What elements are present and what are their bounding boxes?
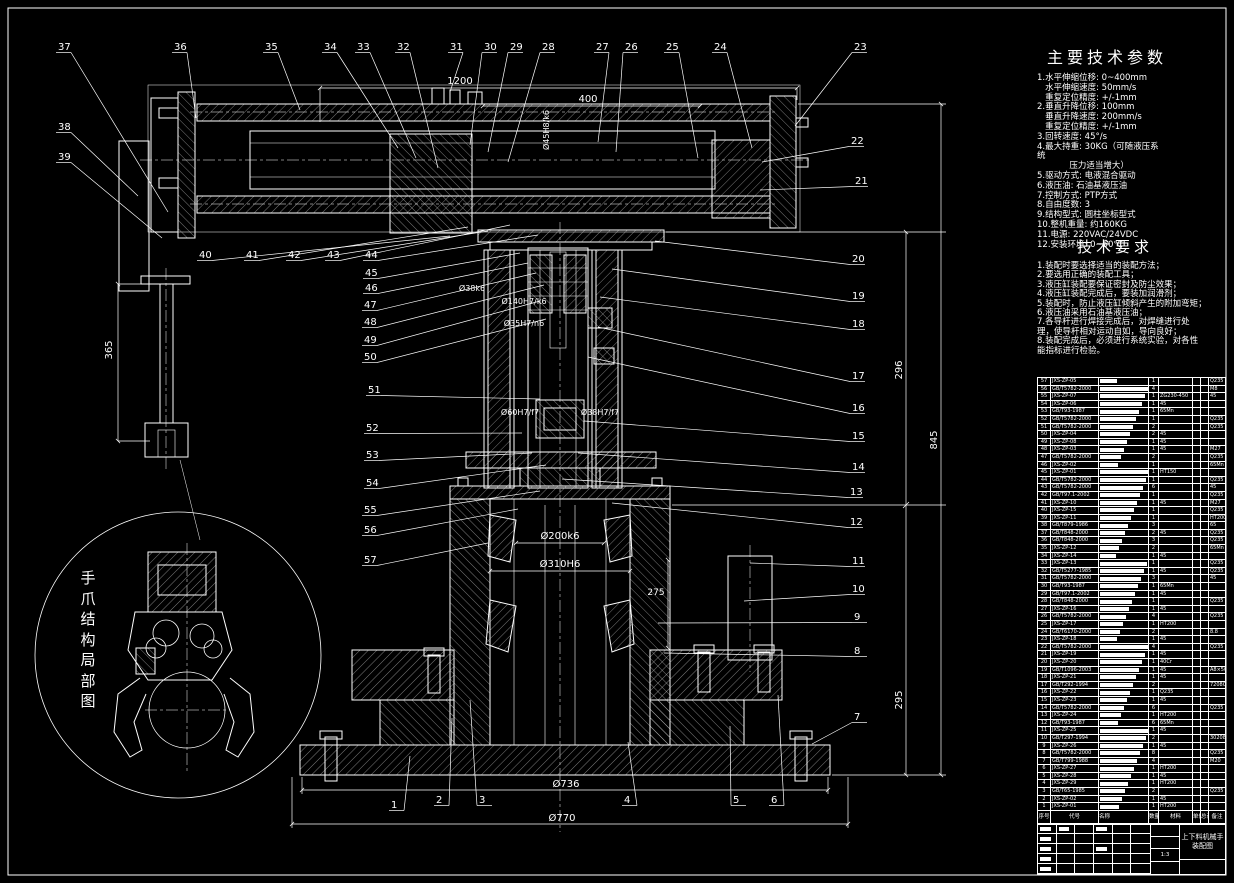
table-cell: 65Mn <box>1209 545 1225 552</box>
callout-label: 36 <box>174 42 187 53</box>
table-row: 32GB/T5277-1985145Q235 <box>1038 568 1225 576</box>
callout-label: 39 <box>58 152 71 163</box>
gripper-detail-label: 手 爪 结 构 局 部 图 <box>79 568 97 712</box>
table-row: 57JXS-ZP-051Q235 <box>1038 378 1225 386</box>
callout-label: 21 <box>855 176 868 187</box>
table-cell <box>1193 386 1201 393</box>
title-block-cell <box>1038 834 1057 844</box>
table-cell <box>1099 408 1149 415</box>
table-row: 37GB/T848-2000245Q235 <box>1038 530 1225 538</box>
table-cell: 总计 <box>1201 811 1209 824</box>
table-row: 44GB/T5782-20001Q235 <box>1038 477 1225 485</box>
table-row: 8GB/T5782-20008Q235 <box>1038 750 1225 758</box>
table-cell: 1 <box>1149 667 1159 674</box>
table-cell: 序号 <box>1038 811 1051 824</box>
part-name-blob <box>1100 577 1141 581</box>
table-cell <box>1201 682 1209 689</box>
table-cell: Q235 <box>1209 560 1225 567</box>
table-cell: 4 <box>1149 386 1159 393</box>
part-name-blob <box>1100 531 1125 535</box>
title-block-cell <box>1075 854 1094 864</box>
table-cell <box>1099 401 1149 408</box>
title-block-cell <box>1094 844 1113 854</box>
table-cell: 45 <box>1159 606 1193 613</box>
table-cell: 45 <box>1159 743 1193 750</box>
table-row: 26GB/T5782-20004Q235 <box>1038 613 1225 621</box>
callout-label: 15 <box>852 431 865 442</box>
table-cell: 45 <box>1209 484 1225 491</box>
title-block-cell <box>1151 862 1179 874</box>
table-cell <box>1193 667 1201 674</box>
table-cell: JXS-ZP-10 <box>1051 500 1099 507</box>
table-cell <box>1193 568 1201 575</box>
table-row: 40JXS-ZP-151Q235 <box>1038 507 1225 515</box>
table-cell <box>1193 530 1201 537</box>
title-block-revision-grid <box>1038 824 1151 874</box>
table-row: 6JXS-ZP-271HT200 <box>1038 765 1225 773</box>
table-cell: JXS-ZP-26 <box>1051 743 1099 750</box>
table-cell: HT200 <box>1159 803 1193 810</box>
part-name-blob <box>1100 782 1128 786</box>
table-row: 50JXS-ZP-04245 <box>1038 431 1225 439</box>
title-block-cell <box>1113 834 1132 844</box>
part-name-blob <box>1100 805 1119 809</box>
table-cell: 1 <box>1149 606 1159 613</box>
table-cell <box>1099 705 1149 712</box>
table-cell <box>1099 484 1149 491</box>
table-cell: HT200 <box>1159 780 1193 787</box>
table-cell <box>1201 469 1209 476</box>
table-cell: HT200 <box>1159 712 1193 719</box>
table-cell <box>1209 674 1225 681</box>
table-cell <box>1201 568 1209 575</box>
table-cell: 1 <box>1149 439 1159 446</box>
title-block-bottom-cell <box>1180 860 1225 874</box>
dimension-label: Ø140H7/k6 <box>501 296 546 306</box>
table-cell <box>1201 803 1209 810</box>
table-cell <box>1193 629 1201 636</box>
table-cell: 45 <box>1159 727 1193 734</box>
table-cell: 65Mn <box>1159 720 1193 727</box>
callout-label: 43 <box>327 250 340 261</box>
table-cell <box>1209 591 1225 598</box>
table-cell <box>1201 416 1209 423</box>
table-cell <box>1099 758 1149 765</box>
table-row: 29GB/T97.1-2002145 <box>1038 591 1225 599</box>
table-cell: 45 <box>1159 439 1193 446</box>
table-cell: 56 <box>1038 386 1051 393</box>
table-cell: 1 <box>1038 803 1051 810</box>
table-cell <box>1193 545 1201 552</box>
table-cell: 1 <box>1149 408 1159 415</box>
table-cell: 1 <box>1149 583 1159 590</box>
table-cell: 27 <box>1038 606 1051 613</box>
table-row: 27JXS-ZP-16145 <box>1038 606 1225 614</box>
table-cell <box>1099 583 1149 590</box>
table-cell: 28 <box>1038 598 1051 605</box>
table-cell: 1 <box>1149 780 1159 787</box>
table-cell: 2 <box>1149 629 1159 636</box>
table-row: 28GB/T848-20001Q235 <box>1038 598 1225 606</box>
table-cell <box>1159 462 1193 469</box>
table-cell <box>1201 727 1209 734</box>
table-cell <box>1099 462 1149 469</box>
table-cell <box>1099 727 1149 734</box>
table-cell <box>1193 401 1201 408</box>
table-row: 53GB/T93-1987165Mn <box>1038 408 1225 416</box>
part-name-blob <box>1100 417 1136 421</box>
table-cell: 46 <box>1038 462 1051 469</box>
table-cell <box>1099 598 1149 605</box>
callout-label: 44 <box>365 250 378 261</box>
title-block-cell <box>1113 854 1132 864</box>
dimension-label: Ø45H8/k6 <box>541 110 551 150</box>
title-block-cell <box>1131 844 1150 854</box>
signature-blob <box>1096 847 1107 851</box>
table-cell: 45 <box>1159 636 1193 643</box>
callout-label: 33 <box>357 42 370 53</box>
title-block-cell <box>1075 834 1094 844</box>
table-cell <box>1099 606 1149 613</box>
table-cell: GB/T5782-2000 <box>1051 705 1099 712</box>
part-name-blob <box>1100 789 1125 793</box>
table-cell: 8 <box>1149 750 1159 757</box>
callout-label: 24 <box>714 42 727 53</box>
table-cell <box>1099 545 1149 552</box>
callout-label: 7 <box>854 712 860 723</box>
table-cell: 37 <box>1038 530 1051 537</box>
table-cell <box>1209 621 1225 628</box>
table-cell: JXS-ZP-07 <box>1051 393 1099 400</box>
table-cell: 26 <box>1038 613 1051 620</box>
table-cell: GB/T1096-2003 <box>1051 667 1099 674</box>
table-cell: 1 <box>1149 773 1159 780</box>
table-cell: JXS-ZP-11 <box>1051 515 1099 522</box>
table-cell <box>1193 439 1201 446</box>
table-cell: 19 <box>1038 667 1051 674</box>
table-cell: GB/T879-1986 <box>1051 522 1099 529</box>
table-row: 25JXS-ZP-171HT200 <box>1038 621 1225 629</box>
callout-label: 52 <box>366 423 379 434</box>
title-block-cell <box>1057 854 1076 864</box>
table-cell <box>1201 393 1209 400</box>
table-cell <box>1201 386 1209 393</box>
table-cell: 6 <box>1149 720 1159 727</box>
table-cell <box>1099 720 1149 727</box>
table-cell <box>1201 537 1209 544</box>
table-cell: 2 <box>1149 735 1159 742</box>
table-cell: 45 <box>1159 401 1193 408</box>
product-name: 上下料机械手 <box>1182 833 1224 842</box>
part-name-blob <box>1100 584 1138 588</box>
callout-label: 27 <box>596 42 609 53</box>
table-row: 14GB/T5782-20006Q235 <box>1038 705 1225 713</box>
part-name-blob <box>1100 387 1148 391</box>
table-cell: 1 <box>1149 560 1159 567</box>
title-block-cell <box>1094 864 1113 874</box>
callout-label: 25 <box>666 42 679 53</box>
table-cell <box>1193 462 1201 469</box>
title-block-cell <box>1151 824 1179 837</box>
table-cell: JXS-ZP-02 <box>1051 462 1099 469</box>
table-cell: A8×50 <box>1209 667 1225 674</box>
part-name-blob <box>1100 713 1121 717</box>
dimension-label: Ø60H7/f7 <box>501 407 539 417</box>
part-name-blob <box>1100 501 1137 505</box>
table-cell <box>1193 606 1201 613</box>
table-cell: GB/T5782-2000 <box>1051 613 1099 620</box>
table-row: 7GB/T799-19884M20 <box>1038 758 1225 766</box>
part-name-blob <box>1100 675 1136 679</box>
part-name-blob <box>1100 592 1135 596</box>
table-cell <box>1159 537 1193 544</box>
table-cell: 52 <box>1038 416 1051 423</box>
part-name-blob <box>1100 562 1147 566</box>
table-row: 49JXS-ZP-08145 <box>1038 439 1225 447</box>
table-cell: JXS-ZP-13 <box>1051 560 1099 567</box>
table-cell <box>1099 386 1149 393</box>
table-cell: 1 <box>1149 462 1159 469</box>
table-cell: Q235 <box>1209 705 1225 712</box>
table-row: 16JXS-ZP-221Q235 <box>1038 689 1225 697</box>
table-cell: 6 <box>1149 705 1159 712</box>
table-cell <box>1201 492 1209 499</box>
part-name-blob <box>1100 486 1143 490</box>
dimension-label: Ø310H6 <box>540 558 581 570</box>
table-cell <box>1201 431 1209 438</box>
table-cell: Q235 <box>1209 416 1225 423</box>
gripper-detail-view <box>35 460 321 798</box>
dimension-label: Ø38H7/f7 <box>581 407 619 417</box>
table-cell <box>1193 788 1201 795</box>
table-cell: JXS-ZP-27 <box>1051 765 1099 772</box>
signature-blob <box>1040 837 1051 841</box>
table-cell: GB/T848-2000 <box>1051 598 1099 605</box>
table-cell: JXS-ZP-04 <box>1051 431 1099 438</box>
table-cell: JXS-ZP-18 <box>1051 636 1099 643</box>
table-cell: JXS-ZP-16 <box>1051 606 1099 613</box>
table-row: 20JXS-ZP-20140Cr <box>1038 659 1225 667</box>
table-cell <box>1193 408 1201 415</box>
table-cell: 9 <box>1038 743 1051 750</box>
table-cell <box>1099 431 1149 438</box>
table-cell: 30 <box>1038 583 1051 590</box>
title-block-cell <box>1113 844 1132 854</box>
table-row: 47GB/T5782-20002Q235 <box>1038 454 1225 462</box>
table-cell <box>1193 378 1201 385</box>
table-cell: JXS-ZP-25 <box>1051 727 1099 734</box>
table-cell <box>1201 454 1209 461</box>
table-cell <box>1193 500 1201 507</box>
table-cell <box>1099 803 1149 810</box>
table-cell: JXS-ZP-14 <box>1051 553 1099 560</box>
table-cell: 1 <box>1149 500 1159 507</box>
callout-label: 31 <box>450 42 463 53</box>
dimension-label: Ø200k6 <box>540 530 579 542</box>
callout-label: 1 <box>391 800 397 811</box>
table-cell <box>1099 568 1149 575</box>
table-row: 52GB/T5782-20001Q235 <box>1038 416 1225 424</box>
table-cell <box>1099 682 1149 689</box>
table-cell <box>1193 727 1201 734</box>
table-cell: 1 <box>1149 568 1159 575</box>
table-cell: 2 <box>1149 788 1159 795</box>
table-cell: GB/T93-1987 <box>1051 720 1099 727</box>
table-cell <box>1099 469 1149 476</box>
table-cell <box>1099 424 1149 431</box>
table-cell: 2 <box>1149 424 1159 431</box>
table-cell: GB/T5782-2000 <box>1051 424 1099 431</box>
table-cell: HT200 <box>1159 621 1193 628</box>
table-cell: 13 <box>1038 712 1051 719</box>
table-cell <box>1193 743 1201 750</box>
table-cell <box>1193 780 1201 787</box>
part-name-blob <box>1100 425 1133 429</box>
table-cell: 2 <box>1149 545 1159 552</box>
table-cell <box>1201 758 1209 765</box>
table-cell: ZG230-450 <box>1159 393 1193 400</box>
part-name-blob <box>1100 516 1131 520</box>
callout-label: 46 <box>365 283 378 294</box>
table-cell: 1 <box>1149 507 1159 514</box>
table-cell: 1 <box>1149 796 1159 803</box>
table-row: 38GB/T879-1986365 <box>1038 522 1225 530</box>
table-cell <box>1193 659 1201 666</box>
table-cell: 45 <box>1209 393 1225 400</box>
callout-label: 37 <box>58 42 71 53</box>
table-cell <box>1209 765 1225 772</box>
table-cell: Q235 <box>1209 477 1225 484</box>
table-cell <box>1193 735 1201 742</box>
part-name-blob <box>1100 622 1123 626</box>
table-cell: 5 <box>1038 773 1051 780</box>
table-cell: 1 <box>1149 393 1159 400</box>
tech-requirements-lines: 1.装配时要选择适当的装配方法；2.要选用正确的装配工具；3.液压缸装配要保证密… <box>1037 262 1227 356</box>
callout-label: 4 <box>624 795 630 806</box>
table-cell <box>1099 500 1149 507</box>
table-cell <box>1209 583 1225 590</box>
table-cell <box>1193 803 1201 810</box>
dimension-label: 400 <box>578 94 597 105</box>
table-cell <box>1193 758 1201 765</box>
table-cell: 45 <box>1159 651 1193 658</box>
table-cell: 16 <box>1038 689 1051 696</box>
part-name-blob <box>1100 440 1127 444</box>
table-cell <box>1201 743 1209 750</box>
title-block-cell <box>1131 864 1150 874</box>
table-cell <box>1201 484 1209 491</box>
table-cell: JXS-ZP-29 <box>1051 780 1099 787</box>
table-cell <box>1193 431 1201 438</box>
table-cell <box>1099 743 1149 750</box>
table-cell <box>1159 424 1193 431</box>
table-cell <box>1201 545 1209 552</box>
table-cell <box>1193 765 1201 772</box>
table-cell: 8 <box>1038 750 1051 757</box>
table-cell <box>1159 386 1193 393</box>
callout-label: 10 <box>852 584 865 595</box>
table-cell: 45 <box>1159 431 1193 438</box>
table-cell <box>1209 431 1225 438</box>
table-cell: 1 <box>1149 712 1159 719</box>
table-cell: 49 <box>1038 439 1051 446</box>
table-cell: 38 <box>1038 522 1051 529</box>
table-row: 5JXS-ZP-28145 <box>1038 773 1225 781</box>
table-cell: M27 <box>1209 446 1225 453</box>
table-cell: 1 <box>1149 378 1159 385</box>
table-cell: 30208 <box>1209 735 1225 742</box>
table-cell: 31 <box>1038 575 1051 582</box>
part-name-blob <box>1100 759 1137 763</box>
table-cell: 45 <box>1159 530 1193 537</box>
table-cell <box>1099 613 1149 620</box>
table-row: 13JXS-ZP-241HT200 <box>1038 712 1225 720</box>
table-cell <box>1099 750 1149 757</box>
part-name-blob <box>1100 508 1134 512</box>
table-cell <box>1159 492 1193 499</box>
table-cell: 45 <box>1159 568 1193 575</box>
title-block-cell <box>1131 854 1150 864</box>
table-cell <box>1193 598 1201 605</box>
table-cell <box>1099 765 1149 772</box>
dimension-label: Ø35H7/n6 <box>504 318 544 328</box>
table-header-row: 序号代号名称数量材料单件总计备注 <box>1038 811 1225 824</box>
part-name-blob <box>1100 751 1140 755</box>
table-cell: 1 <box>1149 598 1159 605</box>
table-cell <box>1099 621 1149 628</box>
table-cell <box>1201 598 1209 605</box>
table-cell <box>1201 439 1209 446</box>
table-row: 35JXS-ZP-12265Mn <box>1038 545 1225 553</box>
table-cell: 21 <box>1038 651 1051 658</box>
title-block-cell <box>1057 824 1076 834</box>
part-name-blob <box>1100 470 1148 474</box>
table-row: 24GB/T6170-200028.8 <box>1038 629 1225 637</box>
table-cell: 1 <box>1149 636 1159 643</box>
table-cell <box>1201 773 1209 780</box>
table-cell <box>1201 583 1209 590</box>
table-cell: 3 <box>1038 788 1051 795</box>
table-cell <box>1099 416 1149 423</box>
title-block-cell <box>1094 834 1113 844</box>
table-cell <box>1201 659 1209 666</box>
callout-label: 19 <box>852 291 865 302</box>
table-cell <box>1201 408 1209 415</box>
table-row: 1JXS-ZP-011HT200 <box>1038 803 1225 811</box>
table-cell <box>1193 796 1201 803</box>
table-cell: GB/T5782-2000 <box>1051 416 1099 423</box>
table-cell <box>1099 659 1149 666</box>
table-cell <box>1193 424 1201 431</box>
part-name-blob <box>1100 402 1142 406</box>
table-cell <box>1159 750 1193 757</box>
table-cell: GB/T799-1988 <box>1051 758 1099 765</box>
cad-drawing-sheet: 3736353433323130292827262524233839404142… <box>0 0 1234 883</box>
callout-label: 6 <box>771 795 777 806</box>
title-block-cell <box>1131 824 1150 834</box>
callout-label: 16 <box>852 403 865 414</box>
table-cell <box>1193 492 1201 499</box>
table-cell: 1 <box>1149 553 1159 560</box>
callout-label: 13 <box>850 487 863 498</box>
table-cell: 45 <box>1159 500 1193 507</box>
callout-label: 51 <box>368 385 381 396</box>
table-cell <box>1159 682 1193 689</box>
callout-label: 18 <box>852 319 865 330</box>
table-cell <box>1201 796 1209 803</box>
table-cell: 3 <box>1149 575 1159 582</box>
table-cell: HT200 <box>1209 515 1225 522</box>
